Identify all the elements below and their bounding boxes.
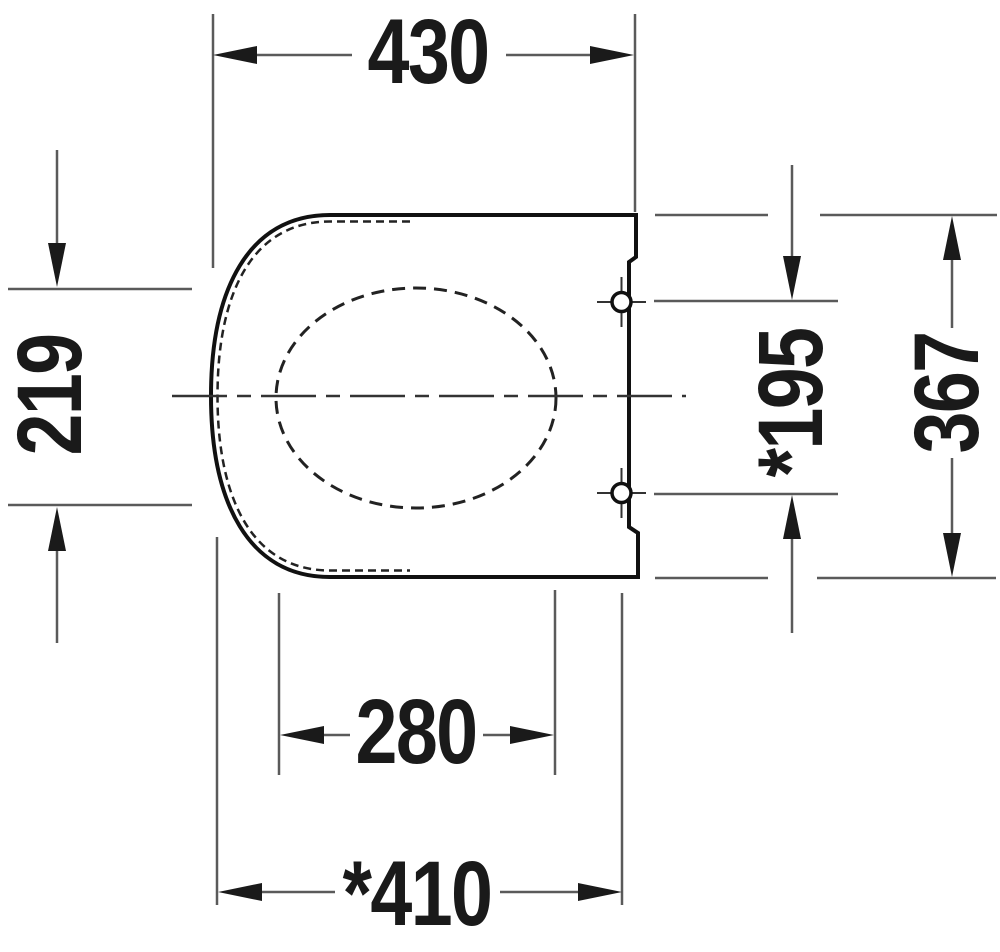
dim-label-bottom-width: *410 [343, 848, 492, 940]
dim-410-arrow-right [578, 883, 622, 901]
dim-label-left-depth: 219 [4, 335, 96, 456]
dim-195-arrow-down [783, 256, 801, 300]
dim-195-arrow-up [783, 495, 801, 539]
dim-label-opening-width: 280 [356, 686, 477, 778]
seat-body [172, 215, 686, 577]
dim-367-arrow-down [943, 533, 961, 577]
hinge-top-circle [612, 293, 631, 312]
dim-219-arrow-down [48, 243, 66, 287]
hinge-bottom-circle [612, 484, 631, 503]
dim-430-arrow-left [213, 46, 257, 64]
seat-technical-drawing [0, 0, 1000, 952]
dim-367-arrow-up [943, 216, 961, 260]
dim-label-right-depth: 367 [901, 333, 993, 454]
dim-280-arrow-left [280, 726, 324, 744]
dim-label-hinge-spacing: *195 [745, 329, 837, 478]
dim-410-arrow-left [218, 883, 262, 901]
drawing-canvas: 430 219 *195 367 280 *410 [0, 0, 1000, 952]
dim-label-top-width: 430 [368, 6, 489, 98]
dim-219-arrow-up [48, 507, 66, 551]
dim-430-arrow-right [590, 46, 634, 64]
dim-280-arrow-right [510, 726, 554, 744]
